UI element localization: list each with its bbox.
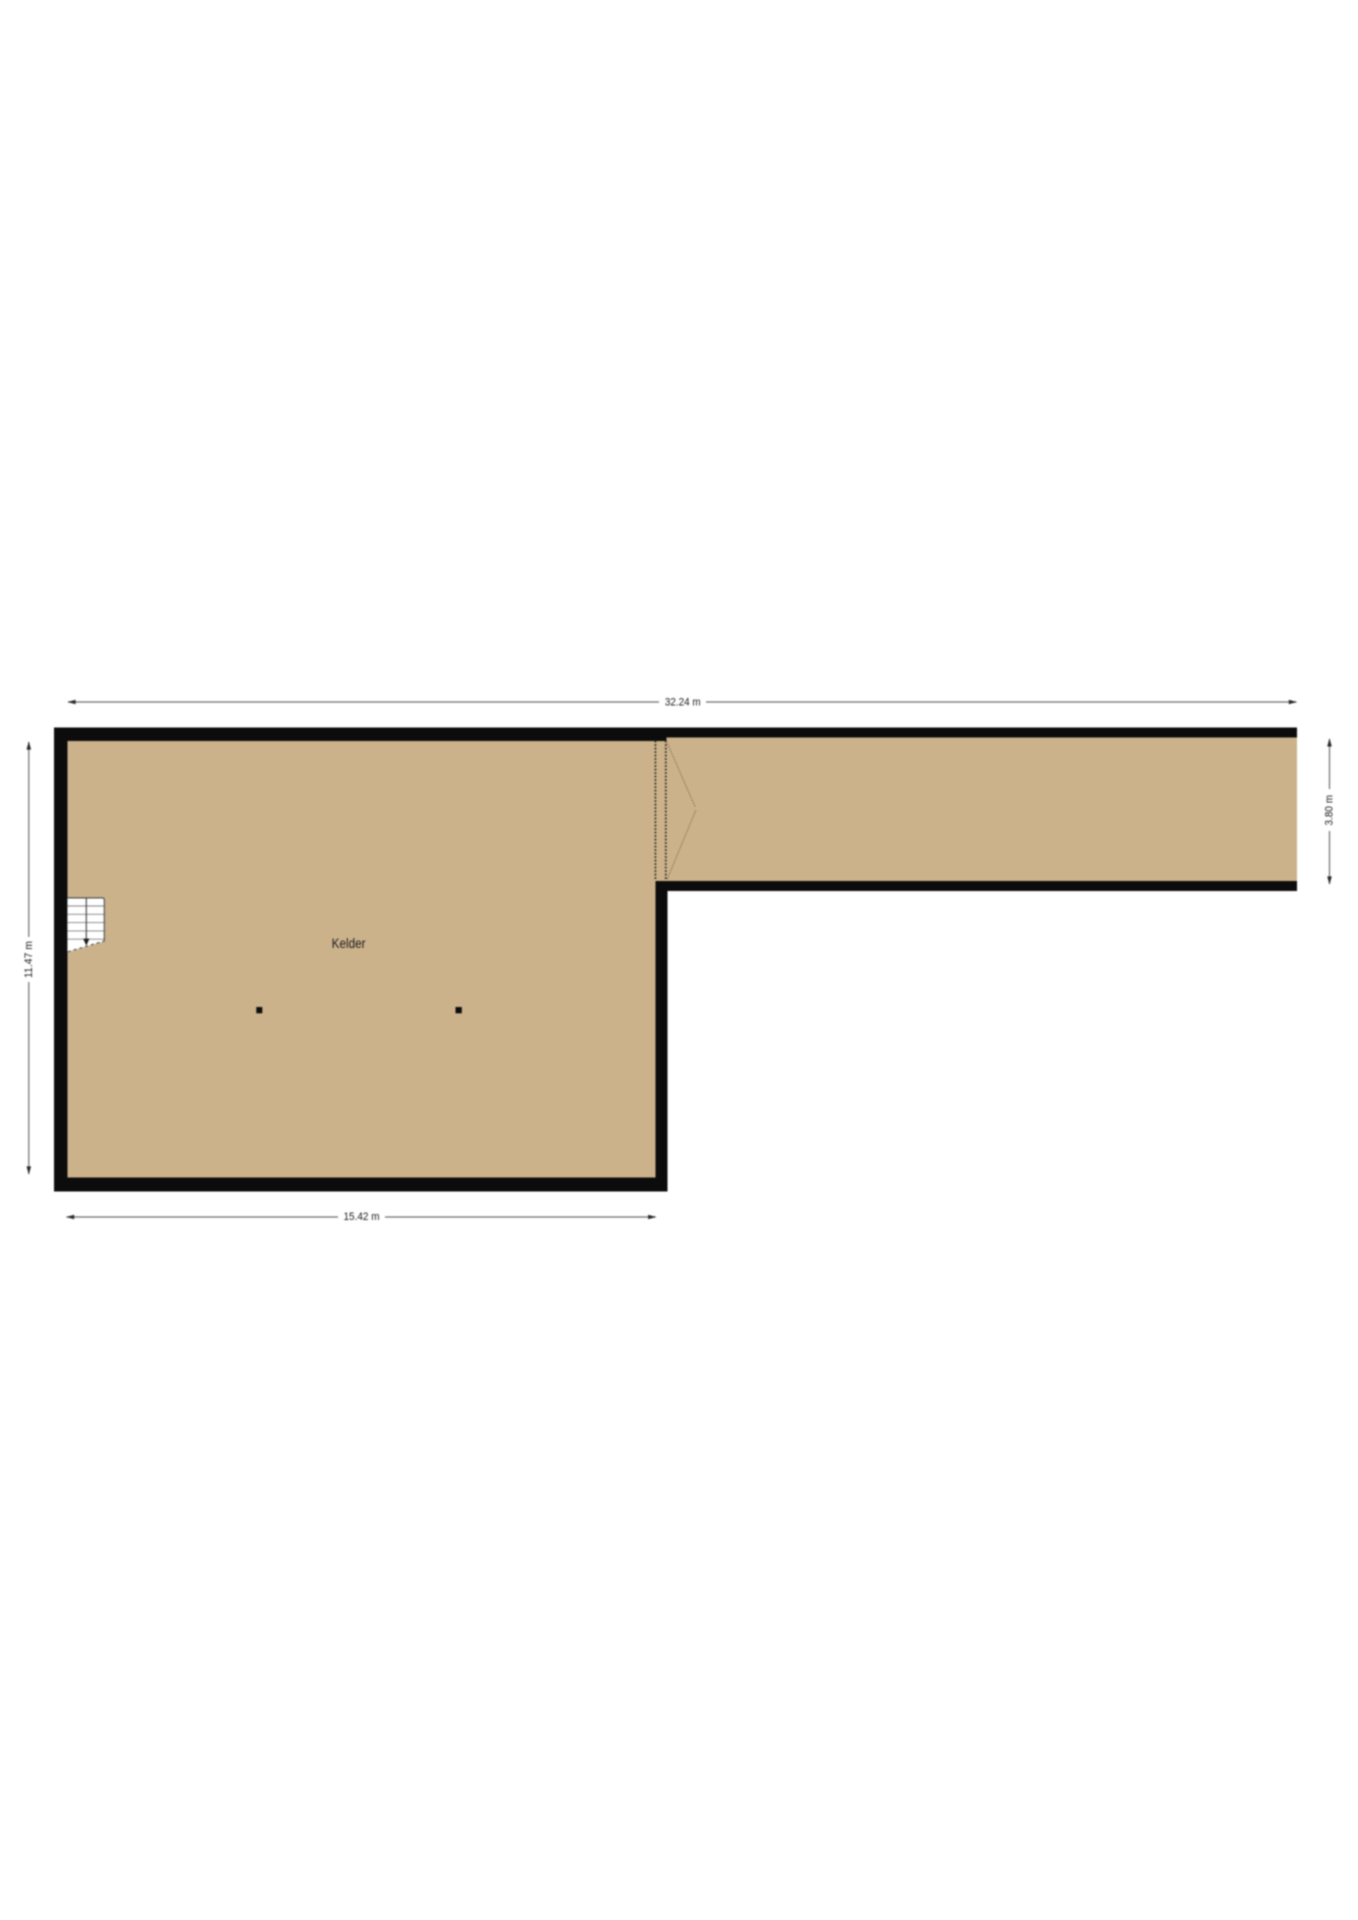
svg-text:32.24 m: 32.24 m: [665, 697, 701, 709]
svg-text:15.42 m: 15.42 m: [344, 1211, 380, 1223]
svg-text:3.80 m: 3.80 m: [1324, 795, 1336, 826]
svg-text:11.47 m: 11.47 m: [23, 941, 35, 978]
svg-text:Kelder: Kelder: [332, 935, 366, 951]
